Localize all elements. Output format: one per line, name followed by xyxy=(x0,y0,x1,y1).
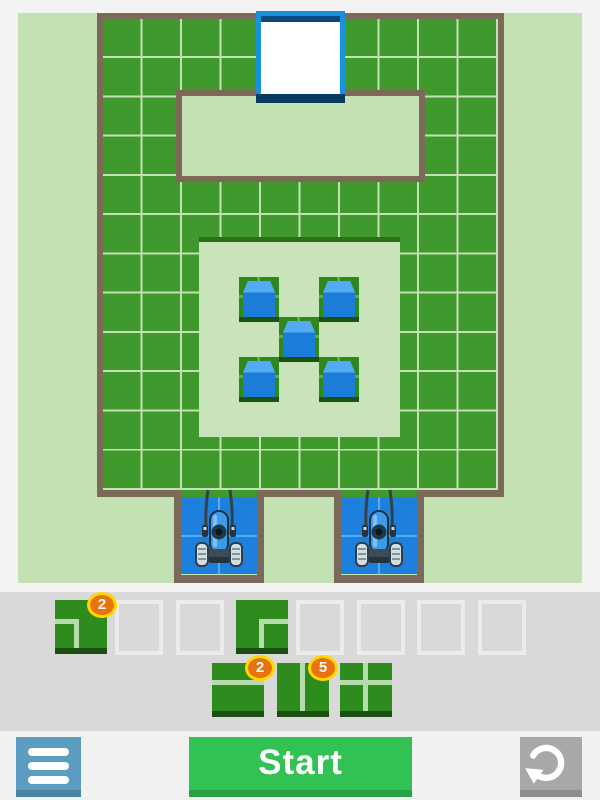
piece-line xyxy=(363,663,368,711)
exit-door-top-edge xyxy=(261,16,340,22)
piece-tray: 2 2 5 xyxy=(0,592,600,731)
tray-piece-corner-right[interactable] xyxy=(236,600,288,654)
tray-slot-empty xyxy=(417,600,465,655)
blue-cube xyxy=(283,321,315,357)
dock-wall xyxy=(417,490,424,583)
tray-slot-empty xyxy=(115,600,163,655)
dock-wall xyxy=(334,575,424,583)
mower-dock-2 xyxy=(334,490,424,583)
dock-wall xyxy=(174,490,181,583)
dock-wall xyxy=(174,575,264,583)
dock-wall xyxy=(334,490,341,583)
piece-line xyxy=(300,663,305,711)
menu-button[interactable] xyxy=(16,737,81,797)
blue-cube xyxy=(243,281,275,317)
piece-count-badge: 2 xyxy=(87,592,117,618)
exit-door-bottom-edge xyxy=(256,94,345,103)
mower-icon xyxy=(347,487,411,571)
mower-dock-1 xyxy=(174,490,264,583)
dock-wall xyxy=(257,490,264,583)
start-button[interactable]: Start xyxy=(189,737,412,797)
blue-cube xyxy=(323,281,355,317)
piece-count-badge: 2 xyxy=(245,655,275,681)
reset-button[interactable] xyxy=(520,737,582,797)
piece-count-badge: 5 xyxy=(308,655,338,681)
piece-line xyxy=(259,619,264,648)
tray-slot-empty xyxy=(357,600,405,655)
tray-slot-empty xyxy=(296,600,344,655)
cutout-notch xyxy=(176,90,425,182)
tray-piece-cross[interactable] xyxy=(340,663,392,717)
blue-cube xyxy=(323,361,355,397)
mower-icon xyxy=(187,487,251,571)
tray-slot-empty xyxy=(176,600,224,655)
cutout-interior xyxy=(182,96,419,176)
game-screen: 2 2 5 Start xyxy=(0,0,600,800)
blue-cube xyxy=(243,361,275,397)
exit-door xyxy=(256,11,345,103)
tray-slot-empty xyxy=(478,600,526,655)
center-feature xyxy=(199,237,400,437)
feature-top-edge xyxy=(199,237,400,242)
piece-line xyxy=(74,619,79,648)
reset-icon xyxy=(524,740,570,786)
